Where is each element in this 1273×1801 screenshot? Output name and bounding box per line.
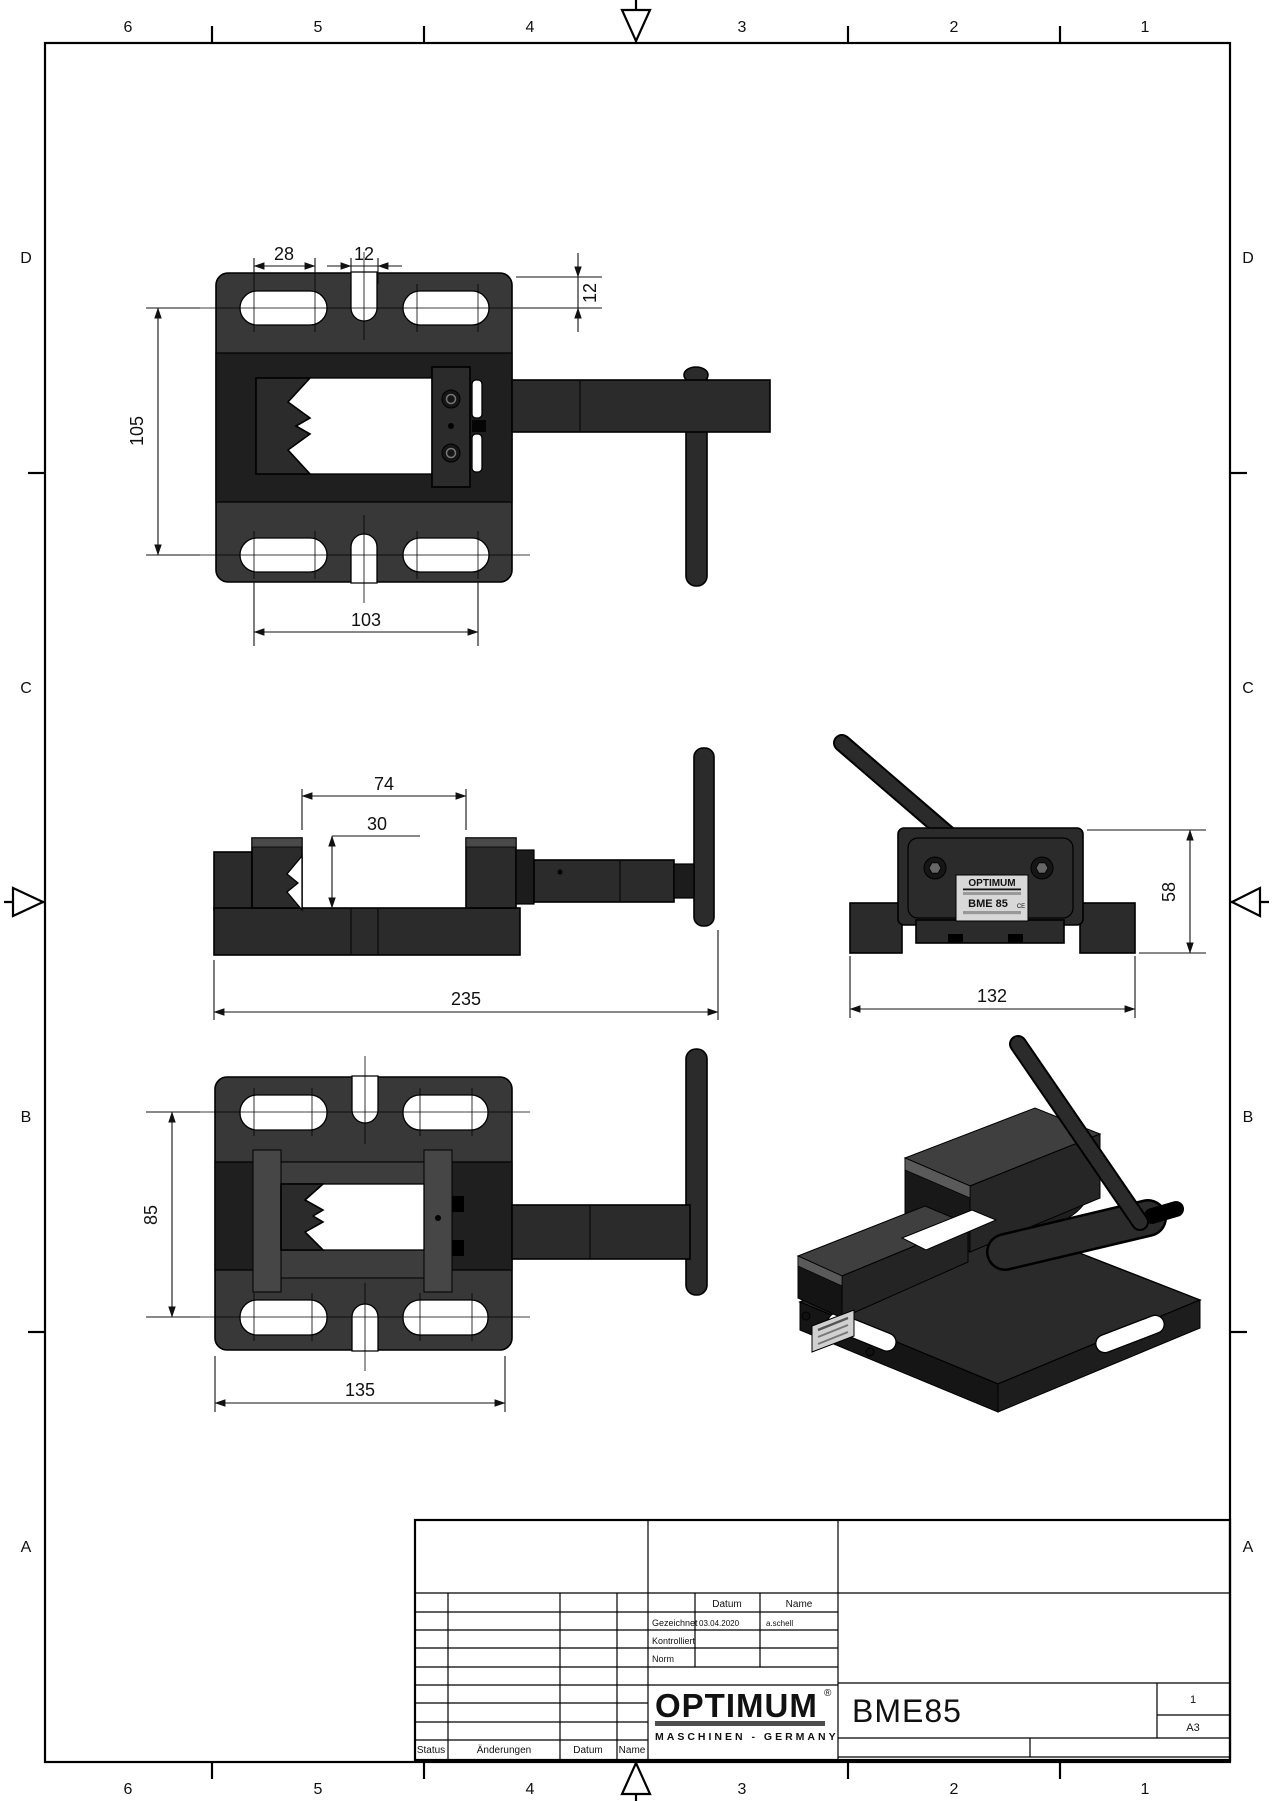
- front-view: 74 30 235: [214, 748, 718, 1020]
- carriage-bar: [281, 1250, 424, 1278]
- svg-text:85: 85: [141, 1205, 161, 1225]
- zone-label: 2: [950, 1781, 959, 1798]
- right-foot: [1080, 903, 1135, 953]
- sheet-number: 1: [1190, 1694, 1196, 1706]
- handle-hub: [674, 864, 694, 898]
- nut-block: [452, 1240, 464, 1256]
- left-pillar: [214, 852, 252, 910]
- center-arrow-right-icon: [1231, 888, 1269, 916]
- drawing-canvas: 6 5 4 3 2 1 6 5 4 3 2 1 D C B A D C B A: [0, 0, 1273, 1801]
- zone-label: 5: [314, 1781, 323, 1798]
- drawing-sheet: 6 5 4 3 2 1 6 5 4 3 2 1 D C B A D C B A: [0, 0, 1273, 1801]
- center-arrow-top-icon: [622, 0, 650, 42]
- header-name: Name: [786, 1599, 813, 1610]
- guide-rail: [253, 1150, 281, 1292]
- center-arrow-left-icon: [4, 888, 44, 916]
- title-block: Datum Name Gezeichnet 03.04.2020 a.schel…: [415, 1520, 1230, 1760]
- dimension-jaw-depth: 30: [332, 814, 420, 908]
- center-pin: [435, 1215, 441, 1221]
- zone-label: A: [21, 1539, 32, 1556]
- nameplate: OPTIMUM BME 85 CE: [956, 875, 1028, 921]
- bottom-view: 85 135: [141, 1049, 707, 1412]
- mounting-slot: [403, 1300, 488, 1335]
- footer-aenderungen: Änderungen: [477, 1744, 532, 1756]
- logo-subtitle: MASCHINEN - GERMANY: [655, 1731, 839, 1743]
- top-view: 28 12 12 105: [127, 244, 770, 646]
- logo-registered: ®: [824, 1688, 832, 1699]
- nut-block: [472, 420, 486, 432]
- zone-label: B: [21, 1109, 32, 1126]
- movable-jaw-rail: [466, 838, 516, 847]
- footer-name: Name: [619, 1745, 646, 1756]
- nameplate-microtext: [963, 892, 1021, 895]
- logo-brand: OPTIMUM: [655, 1687, 818, 1724]
- zone-label: 5: [314, 19, 323, 36]
- mounting-slot: [403, 1095, 488, 1130]
- row-author: a.schell: [766, 1619, 793, 1628]
- handle-bar: [694, 748, 714, 926]
- movable-jaw: [466, 838, 516, 908]
- zone-label: 1: [1141, 1781, 1150, 1798]
- svg-text:132: 132: [977, 986, 1007, 1006]
- mounting-slot: [240, 1095, 327, 1130]
- jaw-slot: [472, 434, 482, 472]
- center-arrow-bottom-icon: [622, 1762, 650, 1801]
- center-pin: [448, 423, 454, 429]
- zone-label: 3: [738, 19, 747, 36]
- svg-text:74: 74: [374, 774, 394, 794]
- tongue-notch: [1008, 934, 1023, 943]
- sheet-format: A3: [1186, 1722, 1199, 1734]
- svg-text:58: 58: [1159, 882, 1179, 902]
- fixed-jaw-rail: [252, 838, 302, 847]
- spindle: [512, 1205, 690, 1259]
- zone-label: 1: [1141, 19, 1150, 36]
- spindle-hole: [558, 870, 563, 875]
- spindle: [534, 860, 674, 902]
- svg-text:30: 30: [367, 814, 387, 834]
- base-tongue: [916, 920, 1064, 943]
- jaw-slot: [472, 380, 482, 418]
- zone-label: C: [1242, 680, 1254, 697]
- header-datum: Datum: [712, 1599, 741, 1610]
- zone-label: C: [20, 680, 32, 697]
- tongue-notch: [948, 934, 963, 943]
- nut-block: [452, 1196, 464, 1212]
- zone-label: 4: [526, 19, 535, 36]
- side-view: OPTIMUM BME 85 CE 58 132: [842, 743, 1206, 1018]
- spindle: [512, 380, 770, 432]
- ce-mark: CE: [1017, 904, 1025, 910]
- hex-bolt-head: [929, 863, 941, 873]
- row-label: Norm: [652, 1654, 674, 1664]
- svg-text:12: 12: [580, 283, 600, 303]
- zone-label: 4: [526, 1781, 535, 1798]
- zone-label: 6: [124, 1781, 133, 1798]
- row-label: Kontrolliert: [652, 1636, 696, 1646]
- base-screw: [802, 1312, 810, 1320]
- base: [214, 908, 520, 955]
- jaw-connector: [516, 850, 534, 904]
- zone-label: D: [20, 250, 32, 267]
- zone-label: 3: [738, 1781, 747, 1798]
- zone-label: B: [1243, 1109, 1254, 1126]
- footer-status: Status: [417, 1745, 445, 1756]
- nameplate-rule: [963, 889, 1021, 891]
- dimension-hole-spacing: 103: [254, 582, 478, 646]
- svg-text:12: 12: [354, 244, 374, 264]
- isometric-view: [798, 1044, 1200, 1412]
- zone-label: A: [1243, 1539, 1254, 1556]
- row-date: 03.04.2020: [699, 1619, 740, 1628]
- svg-text:28: 28: [274, 244, 294, 264]
- hub-stub: [1152, 1209, 1176, 1216]
- dimension-base-width: 132: [850, 956, 1135, 1018]
- jaw-screw: [442, 444, 460, 462]
- optimum-logo: OPTIMUM ® MASCHINEN - GERMANY: [655, 1687, 839, 1743]
- hex-bolt-head: [1036, 863, 1048, 873]
- dimension-body-height: 105: [127, 308, 200, 555]
- left-foot: [850, 903, 902, 953]
- svg-text:105: 105: [127, 416, 147, 446]
- nameplate-model: BME 85: [968, 898, 1008, 910]
- carriage-bar: [281, 1162, 424, 1184]
- jaw-screw: [442, 390, 460, 408]
- logo-rule: [655, 1721, 825, 1726]
- row-label: Gezeichnet: [652, 1618, 698, 1628]
- footer-datum: Datum: [573, 1745, 602, 1756]
- nameplate-brand: OPTIMUM: [968, 878, 1015, 889]
- svg-text:235: 235: [451, 989, 481, 1009]
- svg-text:103: 103: [351, 610, 381, 630]
- mounting-slot: [240, 1300, 327, 1335]
- handle: [842, 743, 950, 836]
- dimension-base-length: 135: [215, 1356, 505, 1412]
- svg-text:135: 135: [345, 1380, 375, 1400]
- zone-label: 6: [124, 19, 133, 36]
- part-number: BME85: [852, 1693, 962, 1729]
- zone-label: 2: [950, 19, 959, 36]
- nameplate-microtext: [963, 911, 1021, 914]
- base-screw: [866, 1348, 874, 1356]
- dimension-body-height: 85: [141, 1112, 200, 1317]
- zone-label: D: [1242, 250, 1254, 267]
